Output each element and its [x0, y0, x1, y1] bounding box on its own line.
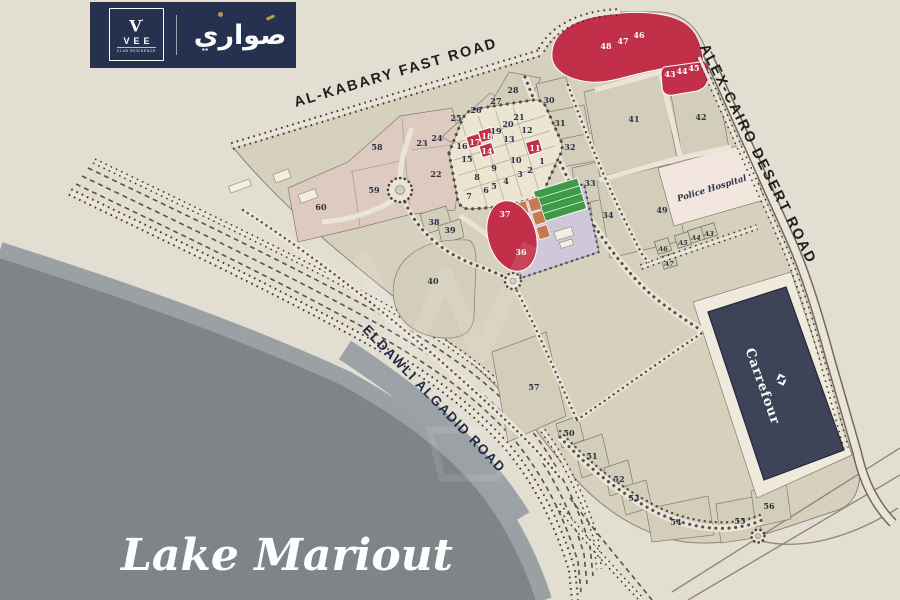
- plot-label-43: 43: [664, 69, 676, 79]
- plot-label-56: 56: [763, 501, 775, 511]
- plot-label-54: 54: [670, 517, 682, 527]
- plot-label-49: 49: [656, 205, 668, 215]
- plot-label-44: 44: [676, 66, 688, 76]
- plot-label-31: 31: [554, 118, 565, 128]
- plot-label-10: 10: [510, 155, 522, 165]
- plot-label-5: 5: [491, 181, 497, 191]
- vee-name: VEE: [123, 36, 153, 46]
- masterplan-map: Carrefour AL-KABARY FAST ROAD ALEX-CAIRO…: [0, 0, 900, 600]
- plot-label-7: 7: [466, 191, 472, 201]
- plot-label-A4: A4: [690, 234, 701, 242]
- plot-label-22: 22: [430, 169, 441, 179]
- plot-label-34: 34: [602, 210, 614, 220]
- plot-label-A3: A3: [703, 230, 714, 238]
- plot-label-16: 16: [456, 141, 468, 151]
- plot-label-40: 40: [427, 276, 439, 286]
- plot-label-48: 48: [600, 41, 612, 51]
- roundabout-main: [388, 178, 412, 202]
- plot-label-13: 13: [503, 134, 515, 144]
- arabic-logo: صواري: [186, 2, 294, 68]
- plot-label-6: 6: [483, 185, 489, 195]
- plot-label-41: 41: [628, 114, 639, 124]
- vee-logo: Vʹ VEE CLUB RESIDENCE: [109, 8, 164, 61]
- plot-label-9: 9: [491, 163, 497, 173]
- plot-label-58: 58: [371, 142, 383, 152]
- plot-label-57: 57: [528, 382, 539, 392]
- plot-label-45: 45: [688, 63, 699, 73]
- vee-subtitle: CLUB RESIDENCE: [117, 47, 156, 53]
- plot-label-59: 59: [368, 185, 380, 195]
- plot-label-1: 1: [539, 156, 545, 166]
- plot-label-20: 20: [502, 119, 514, 129]
- plot-label-11: 11: [529, 143, 540, 153]
- plot-label-60: 60: [315, 202, 327, 212]
- roundabout-south: [752, 530, 765, 543]
- plot-label-14: 14: [481, 146, 493, 156]
- plot-label-21: 21: [513, 112, 524, 122]
- plot-label-39: 39: [444, 225, 456, 235]
- plot-label-27: 27: [490, 96, 501, 106]
- plot-label-A5: A5: [677, 239, 688, 247]
- plot-label-28: 28: [507, 85, 519, 95]
- logo-divider: [176, 15, 177, 55]
- plot-label-46: 46: [633, 30, 645, 40]
- plot-label-30: 30: [543, 95, 555, 105]
- plot-label-33: 33: [584, 178, 596, 188]
- plot-label-55: 55: [734, 516, 745, 526]
- brand-header: Vʹ VEE CLUB RESIDENCE صواري: [90, 2, 296, 68]
- plot-label-26: 26: [470, 105, 482, 115]
- lake-label: Lake Mariout: [119, 530, 453, 581]
- plot-label-12: 12: [521, 125, 532, 135]
- plot-label-38: 38: [428, 217, 440, 227]
- gold-accent-dot: [218, 12, 223, 17]
- plot-label-25: 25: [450, 113, 461, 123]
- plot-label-15: 15: [461, 154, 472, 164]
- plot-label-3: 3: [517, 169, 523, 179]
- plot-label-47: 47: [617, 36, 628, 46]
- plot-label-37: 37: [499, 209, 510, 219]
- plot-label-19: 19: [490, 126, 502, 136]
- masterplan-canvas: Carrefour AL-KABARY FAST ROAD ALEX-CAIRO…: [0, 0, 900, 600]
- plot-label-52: 52: [613, 474, 624, 484]
- plot-label-36: 36: [515, 247, 527, 257]
- plot-label-53: 53: [628, 493, 640, 503]
- plot-label-8: 8: [474, 172, 480, 182]
- plot-label-2: 2: [527, 165, 533, 175]
- plot-label-50: 50: [563, 428, 575, 438]
- plot-label-51: 51: [586, 451, 597, 461]
- plot-label-42: 42: [695, 112, 706, 122]
- plot-label-23: 23: [416, 138, 428, 148]
- plot-label-A7: A7: [663, 260, 674, 268]
- vee-monogram: Vʹ: [129, 16, 144, 33]
- plot-label-17: 17: [469, 137, 480, 147]
- plot-label-4: 4: [503, 176, 509, 186]
- plot-label-A6: A6: [657, 245, 668, 253]
- plot-label-32: 32: [564, 142, 575, 152]
- plot-label-24: 24: [431, 133, 443, 143]
